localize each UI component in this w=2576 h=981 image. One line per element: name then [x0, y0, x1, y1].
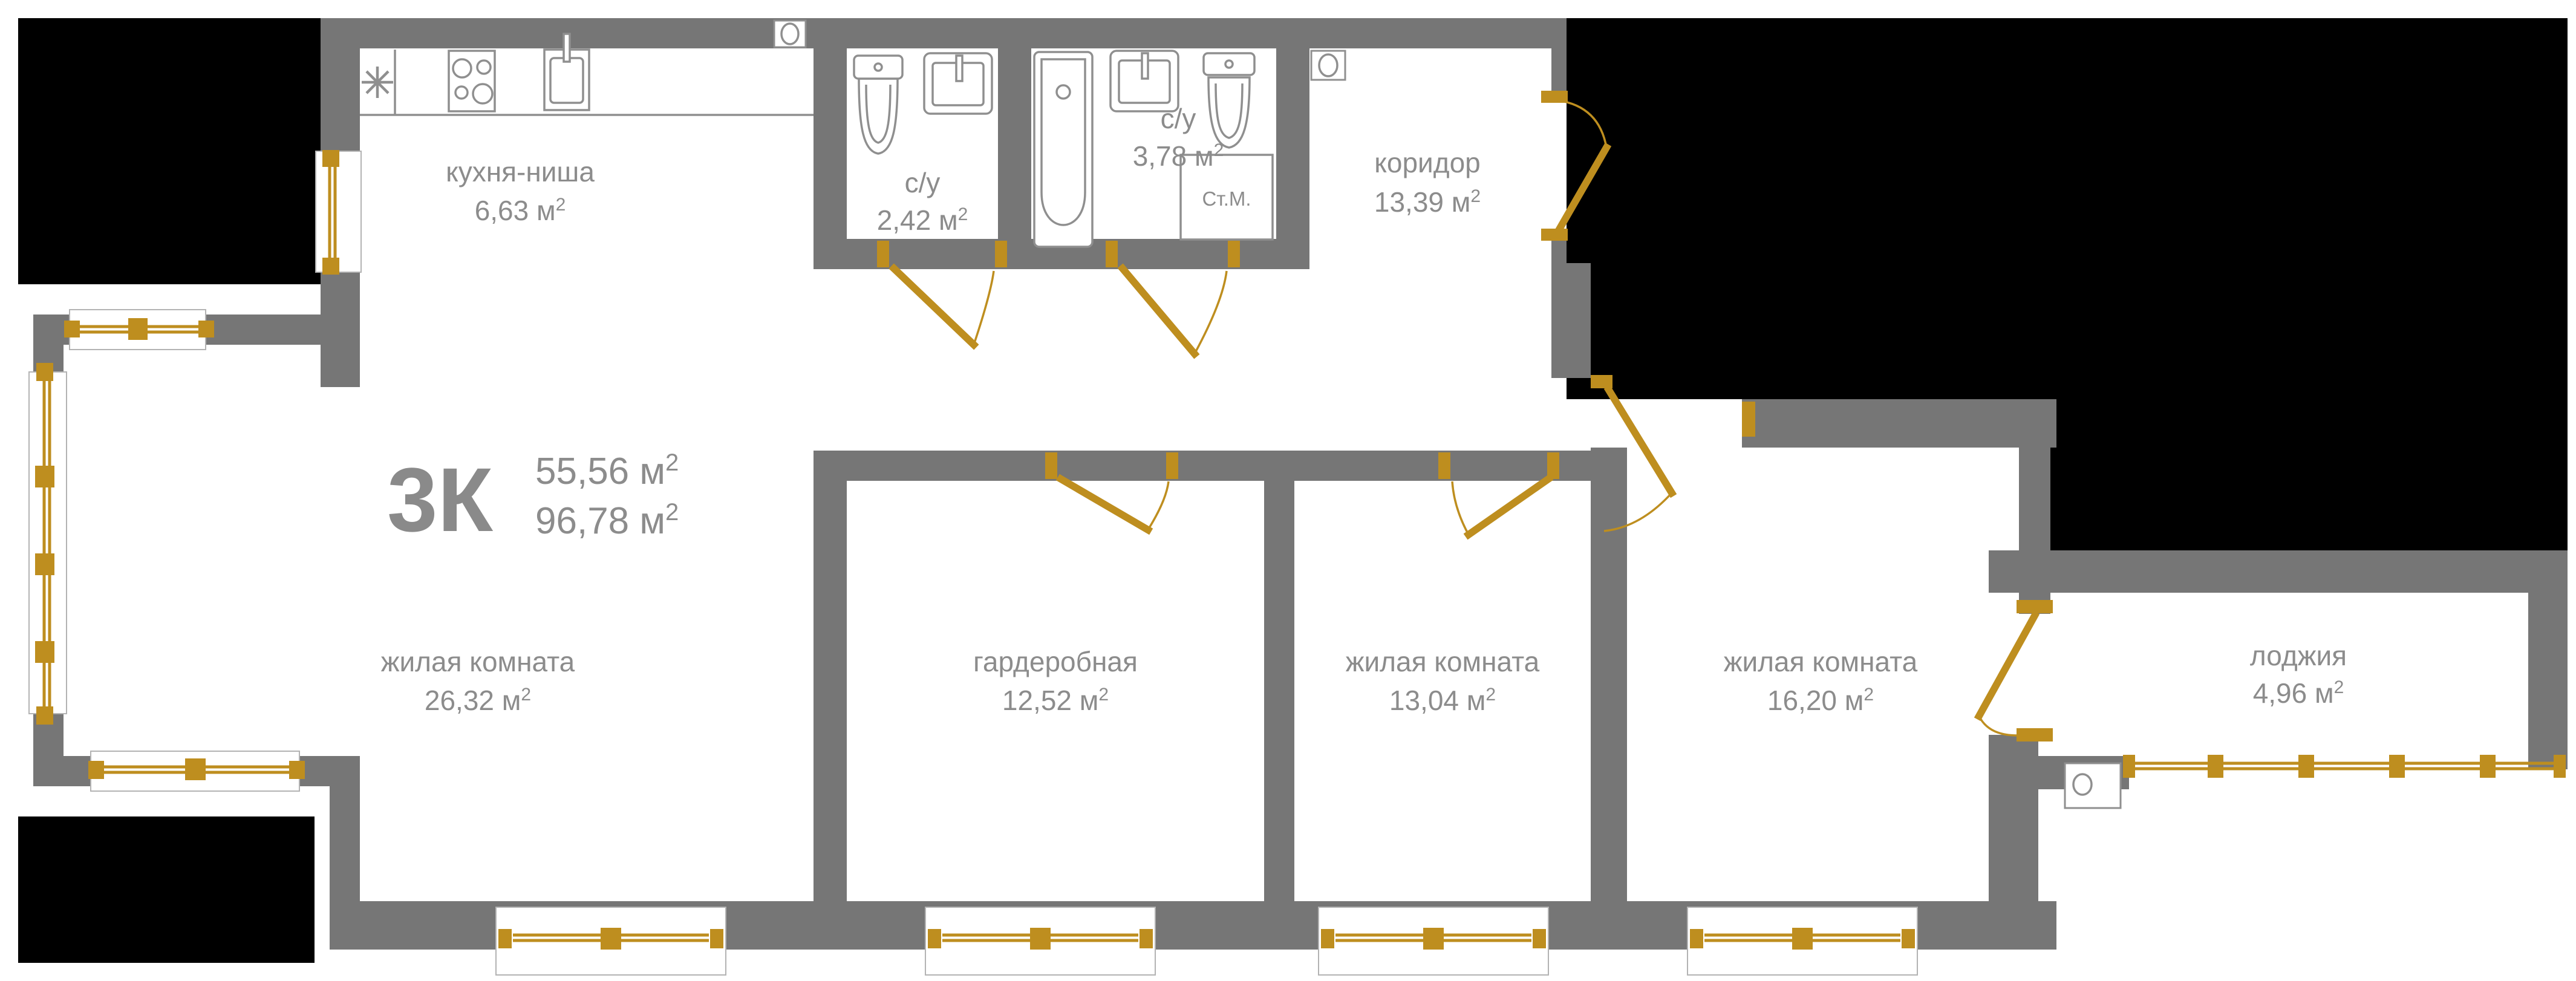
svg-text:коридор: коридор	[1374, 147, 1481, 178]
room-label-bath-small: с/у 2,42 м2	[877, 167, 968, 236]
wall-hall-right	[1551, 263, 1591, 378]
ventilation-icon-corridor	[1311, 51, 1345, 80]
wall-wardrobe-room2	[1264, 451, 1294, 907]
window-recess	[316, 151, 361, 272]
wall-bath-separator	[998, 48, 1031, 239]
window-bay-top	[64, 310, 214, 350]
outside-area-top-right	[1567, 18, 2568, 550]
ventilation-icon-loggia	[2065, 763, 2121, 808]
svg-text:4,96 м2: 4,96 м2	[2253, 677, 2344, 709]
apartment-type: 3К	[387, 449, 493, 550]
room-label-loggia: лоджия 4,96 м2	[2250, 640, 2347, 709]
outside-area-bottom-left	[18, 816, 315, 963]
fridge-icon	[362, 67, 393, 98]
wall-room2-room3	[1591, 448, 1627, 907]
toilet-icon-small	[854, 56, 902, 154]
svg-text:жилая комната: жилая комната	[1724, 646, 1918, 677]
svg-text:6,63 м2: 6,63 м2	[475, 195, 566, 226]
svg-text:16,20 м2: 16,20 м2	[1767, 685, 1874, 716]
svg-text:2,42 м2: 2,42 м2	[877, 204, 968, 236]
svg-text:гардеробная: гардеробная	[973, 646, 1138, 677]
svg-text:12,52 м2: 12,52 м2	[1002, 685, 1109, 716]
svg-text:13,39 м2: 13,39 м2	[1374, 186, 1481, 218]
wall-kitchen-right	[814, 48, 847, 269]
wall-entrance-top	[1551, 48, 1567, 98]
wall-living-wardrobe	[814, 451, 847, 907]
svg-text:26,32 м2: 26,32 м2	[425, 685, 531, 716]
sink-icon-big	[1110, 51, 1178, 111]
room-label-corridor: коридор 13,39 м2	[1374, 147, 1481, 218]
room-label-living-room-1: жилая комната 26,32 м2	[381, 646, 575, 716]
window-bay-left	[29, 363, 67, 725]
wall-room3-top	[1742, 399, 2056, 448]
window-living-room-3	[1687, 907, 1917, 975]
svg-text:с/у: с/у	[905, 167, 941, 198]
svg-text:с/у: с/у	[1161, 103, 1196, 134]
apartment-title: 3К 55,56 м2 96,78 м2	[387, 449, 679, 550]
toilet-icon-big	[1204, 53, 1254, 148]
ventilation-icon-kitchen	[774, 21, 806, 47]
apartment-area-total: 96,78 м2	[535, 499, 679, 542]
room-label-living-room-2: жилая комната 13,04 м2	[1346, 646, 1540, 716]
floor-plan-page: Ст.М. 3К 55,56 м2 96,78 м2 кухня-ниша 6,…	[0, 0, 2576, 981]
svg-text:13,04 м2: 13,04 м2	[1389, 685, 1496, 716]
floor-plan: Ст.М. 3К 55,56 м2 96,78 м2 кухня-ниша 6,…	[0, 0, 2576, 981]
bathtub-icon	[1034, 52, 1092, 247]
wall-loggia-right	[2528, 593, 2568, 769]
window-living-room-2	[1319, 907, 1548, 975]
window-living-room-1	[496, 907, 726, 975]
washing-machine-label: Ст.М.	[1202, 187, 1251, 210]
window-kitchen-left	[316, 150, 361, 275]
stove-icon	[449, 51, 495, 111]
door-loggia	[1979, 600, 2053, 741]
room-label-kitchen: кухня-ниша 6,63 м2	[446, 156, 595, 226]
svg-text:3,78 м2: 3,78 м2	[1133, 140, 1224, 172]
wall-bay-corner-bottom	[330, 756, 360, 907]
svg-text:лоджия: лоджия	[2250, 640, 2347, 671]
wall-loggia-top	[1989, 550, 2568, 593]
wall-top	[321, 18, 1567, 48]
room-label-wardrobe: гардеробная 12,52 м2	[973, 646, 1138, 716]
apartment-area-living: 55,56 м2	[535, 449, 679, 492]
svg-text:жилая комната: жилая комната	[1346, 646, 1540, 677]
sink-icon-small	[924, 53, 992, 114]
window-wardrobe	[925, 907, 1155, 975]
wall-hall-bottom	[814, 451, 1591, 481]
svg-text:кухня-ниша: кухня-ниша	[446, 156, 595, 187]
wall-corridor-left	[1276, 48, 1309, 269]
svg-text:жилая комната: жилая комната	[381, 646, 575, 677]
room-label-living-room-3: жилая комната 16,20 м2	[1724, 646, 1918, 716]
loggia-railing	[2123, 755, 2566, 778]
window-bay-bottom	[88, 751, 305, 791]
outside-area-top-left	[18, 18, 321, 284]
